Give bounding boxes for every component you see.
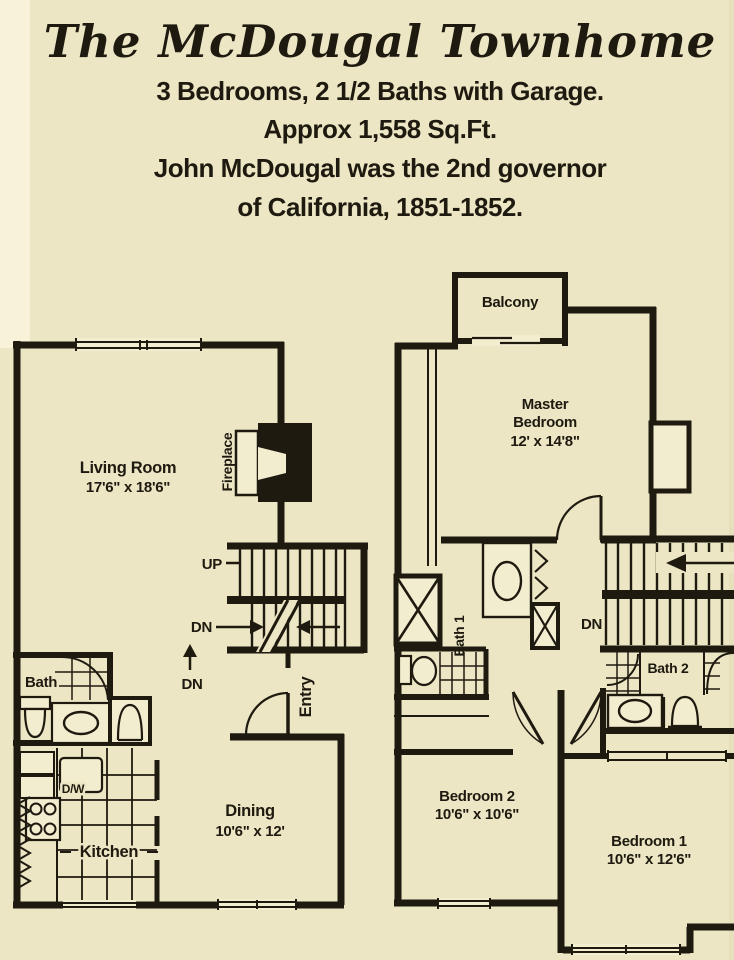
bifold-door bbox=[535, 577, 547, 599]
fireplace-label: Fireplace bbox=[219, 432, 235, 491]
kitchen-window bbox=[63, 900, 136, 909]
stairs-dn-label: DN bbox=[191, 619, 212, 636]
toilet-bowl bbox=[412, 657, 436, 685]
master-closet bbox=[396, 349, 440, 644]
bedroom2-dims: 10'6" x 10'6" bbox=[435, 806, 519, 823]
living-room-dims: 17'6" x 18'6" bbox=[86, 479, 170, 496]
master-bedroom-label-2: Bedroom bbox=[513, 414, 577, 431]
kitchen-counter-cabinet bbox=[20, 752, 54, 774]
bedroom1-label: Bedroom 1 bbox=[611, 833, 687, 850]
bath-vanity bbox=[52, 703, 110, 743]
bedroom1-dims: 10'6" x 12'6" bbox=[607, 851, 691, 868]
master-window-box bbox=[651, 423, 689, 491]
bedroom2-label: Bedroom 2 bbox=[439, 788, 515, 805]
bath-label: Bath bbox=[25, 674, 57, 691]
hall-dn-label: DN bbox=[181, 676, 202, 693]
entry-label: Entry bbox=[297, 676, 315, 718]
floor-plan-drawing: Living Room 17'6" x 18'6" Fireplace UP D… bbox=[0, 0, 734, 960]
toilet-tank bbox=[399, 656, 411, 684]
dishwasher-label: D/W bbox=[62, 782, 85, 796]
balcony-label: Balcony bbox=[482, 294, 539, 311]
floor-plan-page: The McDougal Townhome 3 Bedrooms, 2 1/2 … bbox=[0, 0, 734, 960]
kitchen-area bbox=[18, 748, 158, 903]
staircase-second-floor bbox=[602, 543, 734, 645]
stove bbox=[26, 798, 60, 840]
second-floor-plan: Balcony Master Bedroom 12' x 14'8" Bath … bbox=[394, 272, 734, 955]
toilet-tank bbox=[20, 697, 50, 709]
stair-arrow-left bbox=[296, 620, 310, 634]
living-room-label: Living Room bbox=[80, 459, 177, 477]
bathroom-first-floor bbox=[20, 657, 150, 744]
dining-label: Dining bbox=[225, 802, 275, 820]
stairs-up-label: UP bbox=[202, 556, 223, 573]
bifold-door bbox=[535, 550, 547, 572]
stairs2-dn-label: DN bbox=[581, 616, 602, 633]
master-door bbox=[557, 496, 601, 540]
living-room-window bbox=[76, 338, 201, 351]
staircase-first-floor bbox=[216, 546, 345, 652]
bath1-vanity bbox=[483, 543, 531, 617]
dining-dims: 10'6" x 12' bbox=[215, 823, 284, 840]
first-floor-plan: Living Room 17'6" x 18'6" Fireplace UP D… bbox=[13, 338, 368, 910]
bath1-label: Bath 1 bbox=[451, 615, 467, 657]
stair-arrow-right bbox=[250, 620, 264, 634]
dining-window bbox=[218, 899, 296, 910]
hall-double-doors bbox=[513, 692, 601, 744]
kitchen-label: Kitchen bbox=[80, 843, 139, 861]
bedroom2-window bbox=[438, 898, 490, 909]
master-bedroom-label-1: Master bbox=[522, 396, 569, 413]
bath2-label: Bath 2 bbox=[648, 660, 690, 676]
bedroom1-window bbox=[572, 944, 680, 955]
master-bedroom-dims: 12' x 14'8" bbox=[510, 433, 580, 450]
fireplace bbox=[236, 423, 312, 502]
hall-dn-arrow bbox=[183, 644, 197, 670]
toilet-bowl bbox=[672, 697, 698, 726]
entry-door bbox=[230, 693, 290, 735]
toilet-bowl bbox=[25, 709, 45, 737]
kitchen-counter-cabinet bbox=[20, 776, 54, 798]
bedroom1-closet-front bbox=[608, 750, 726, 762]
